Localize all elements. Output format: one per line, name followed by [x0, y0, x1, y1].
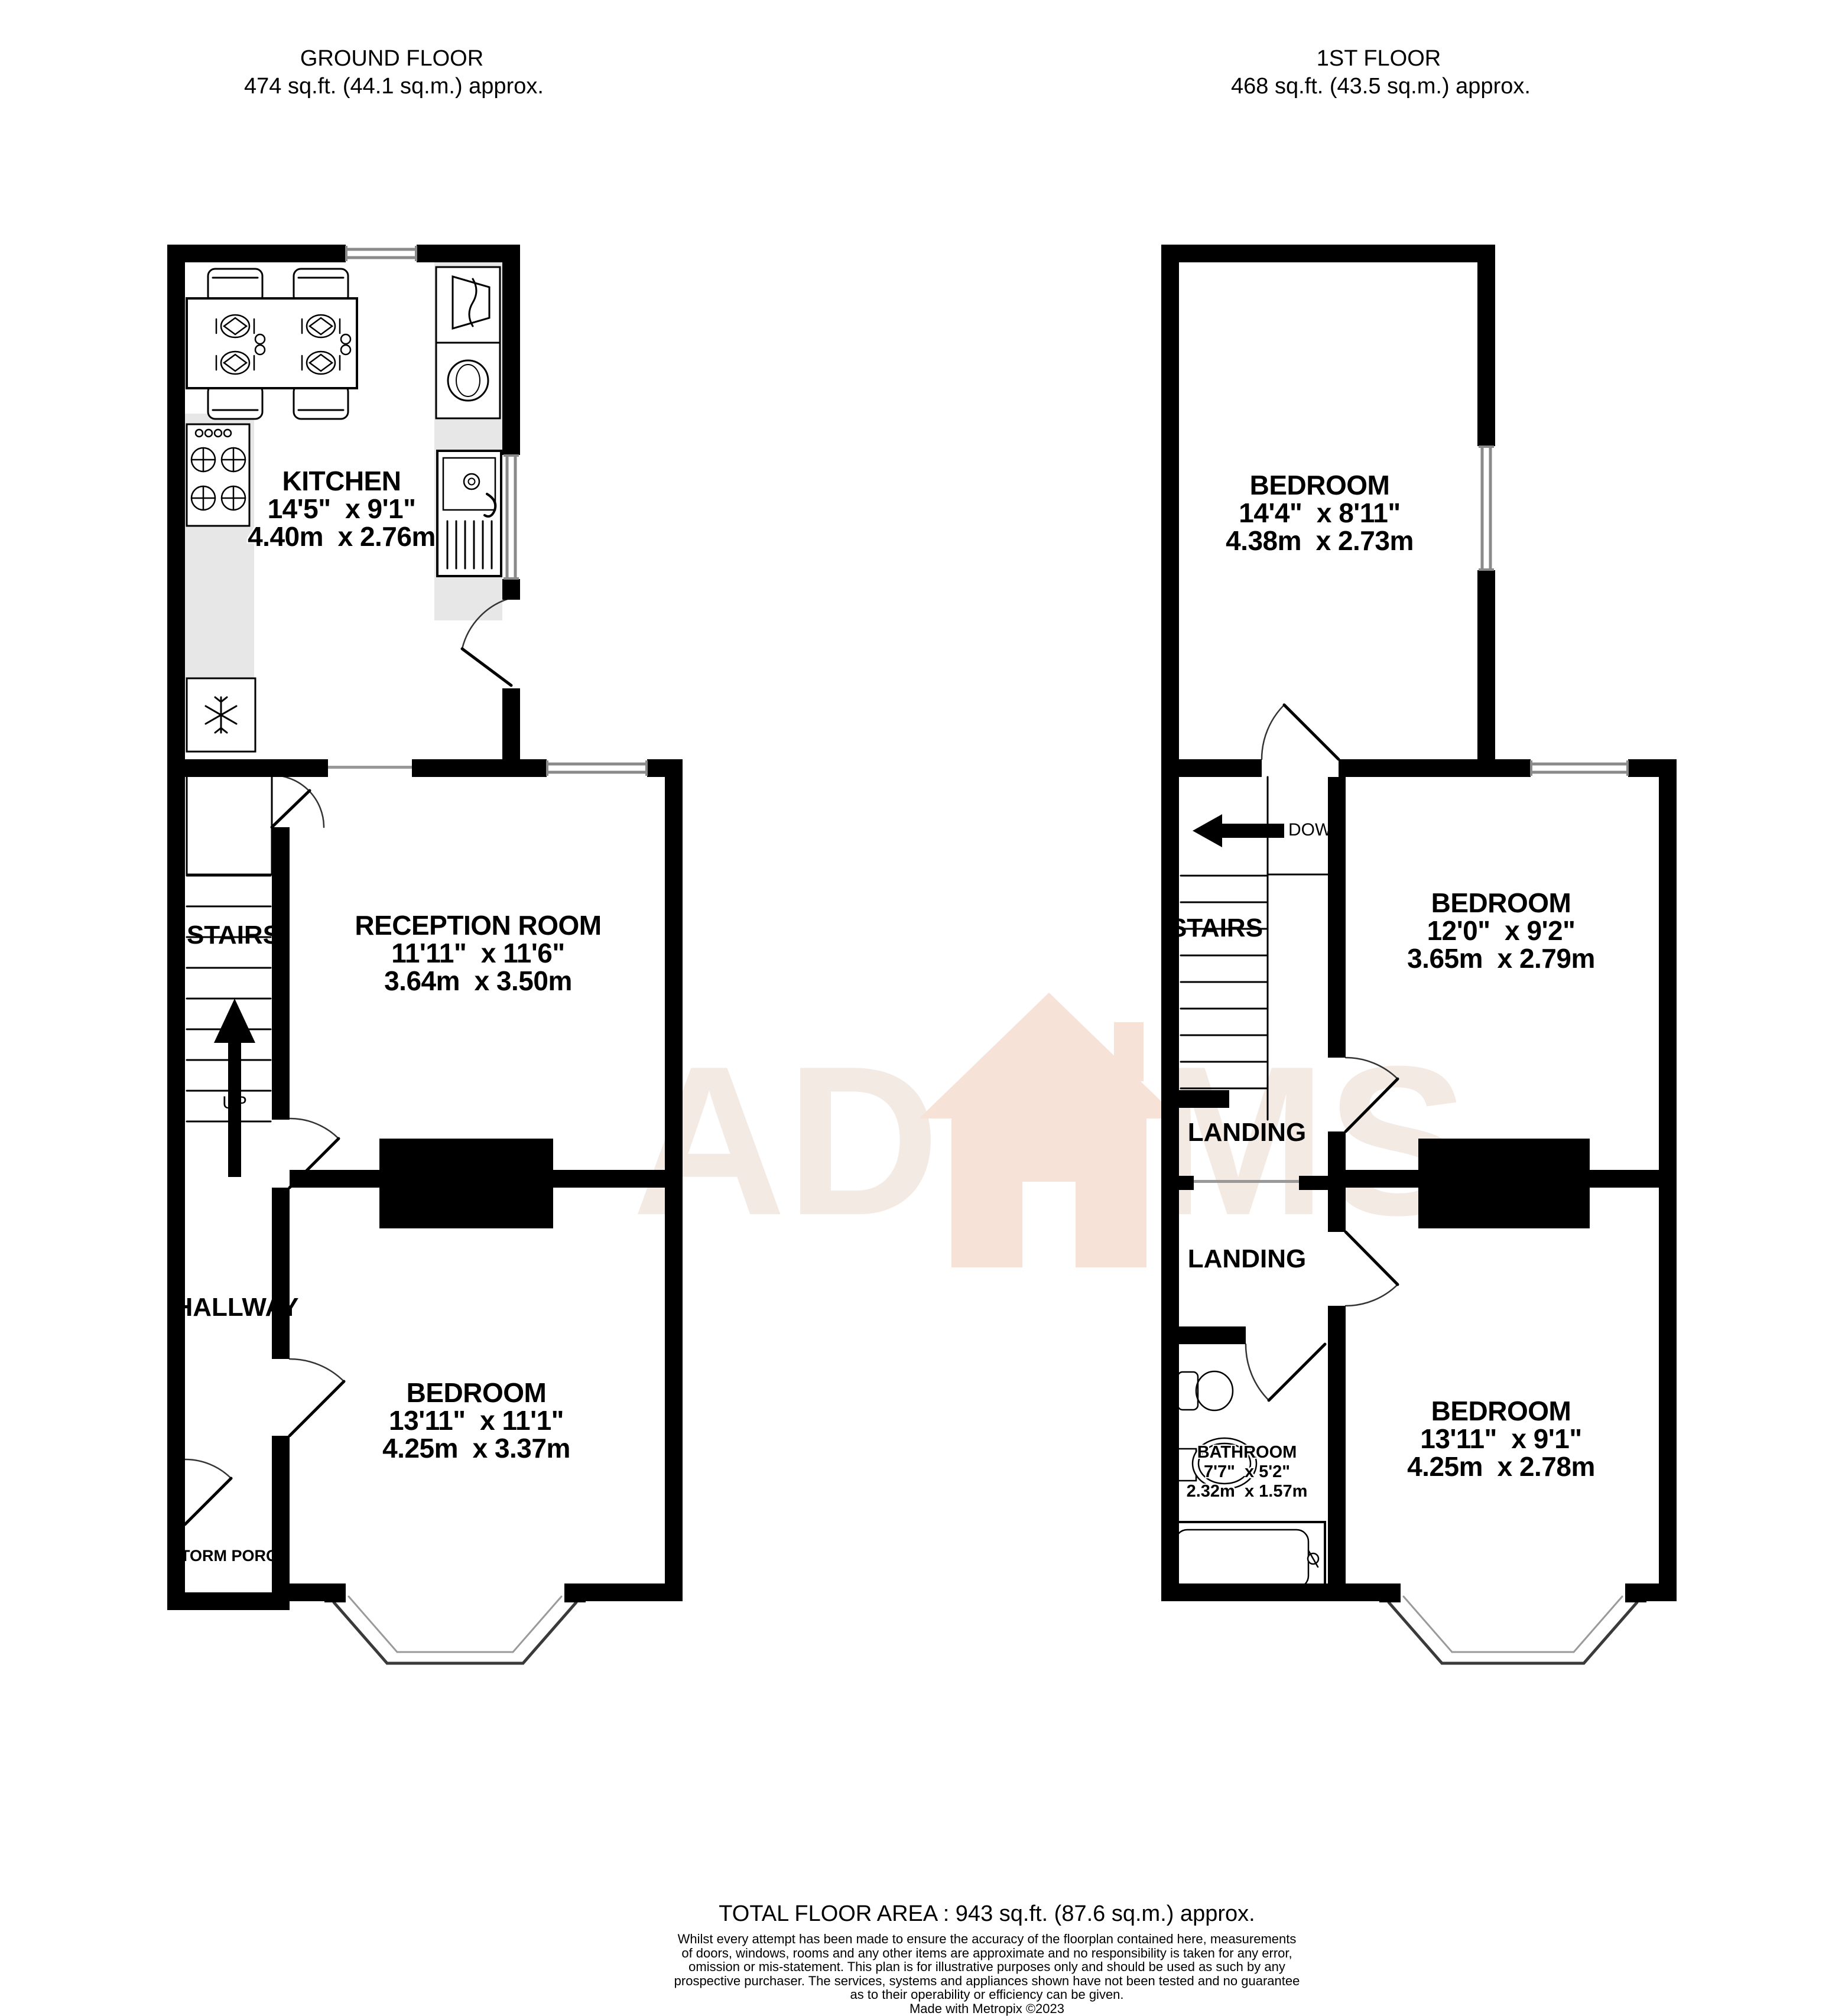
chimney-breast	[1418, 1139, 1590, 1228]
window	[346, 245, 417, 262]
walls-layer	[0, 0, 1832, 2011]
window	[547, 759, 647, 777]
window	[1531, 759, 1628, 777]
ground-walls	[167, 245, 683, 1610]
first-walls	[1161, 245, 1677, 1602]
window	[502, 455, 520, 579]
window	[1477, 446, 1495, 570]
chimney-breast	[379, 1139, 553, 1228]
